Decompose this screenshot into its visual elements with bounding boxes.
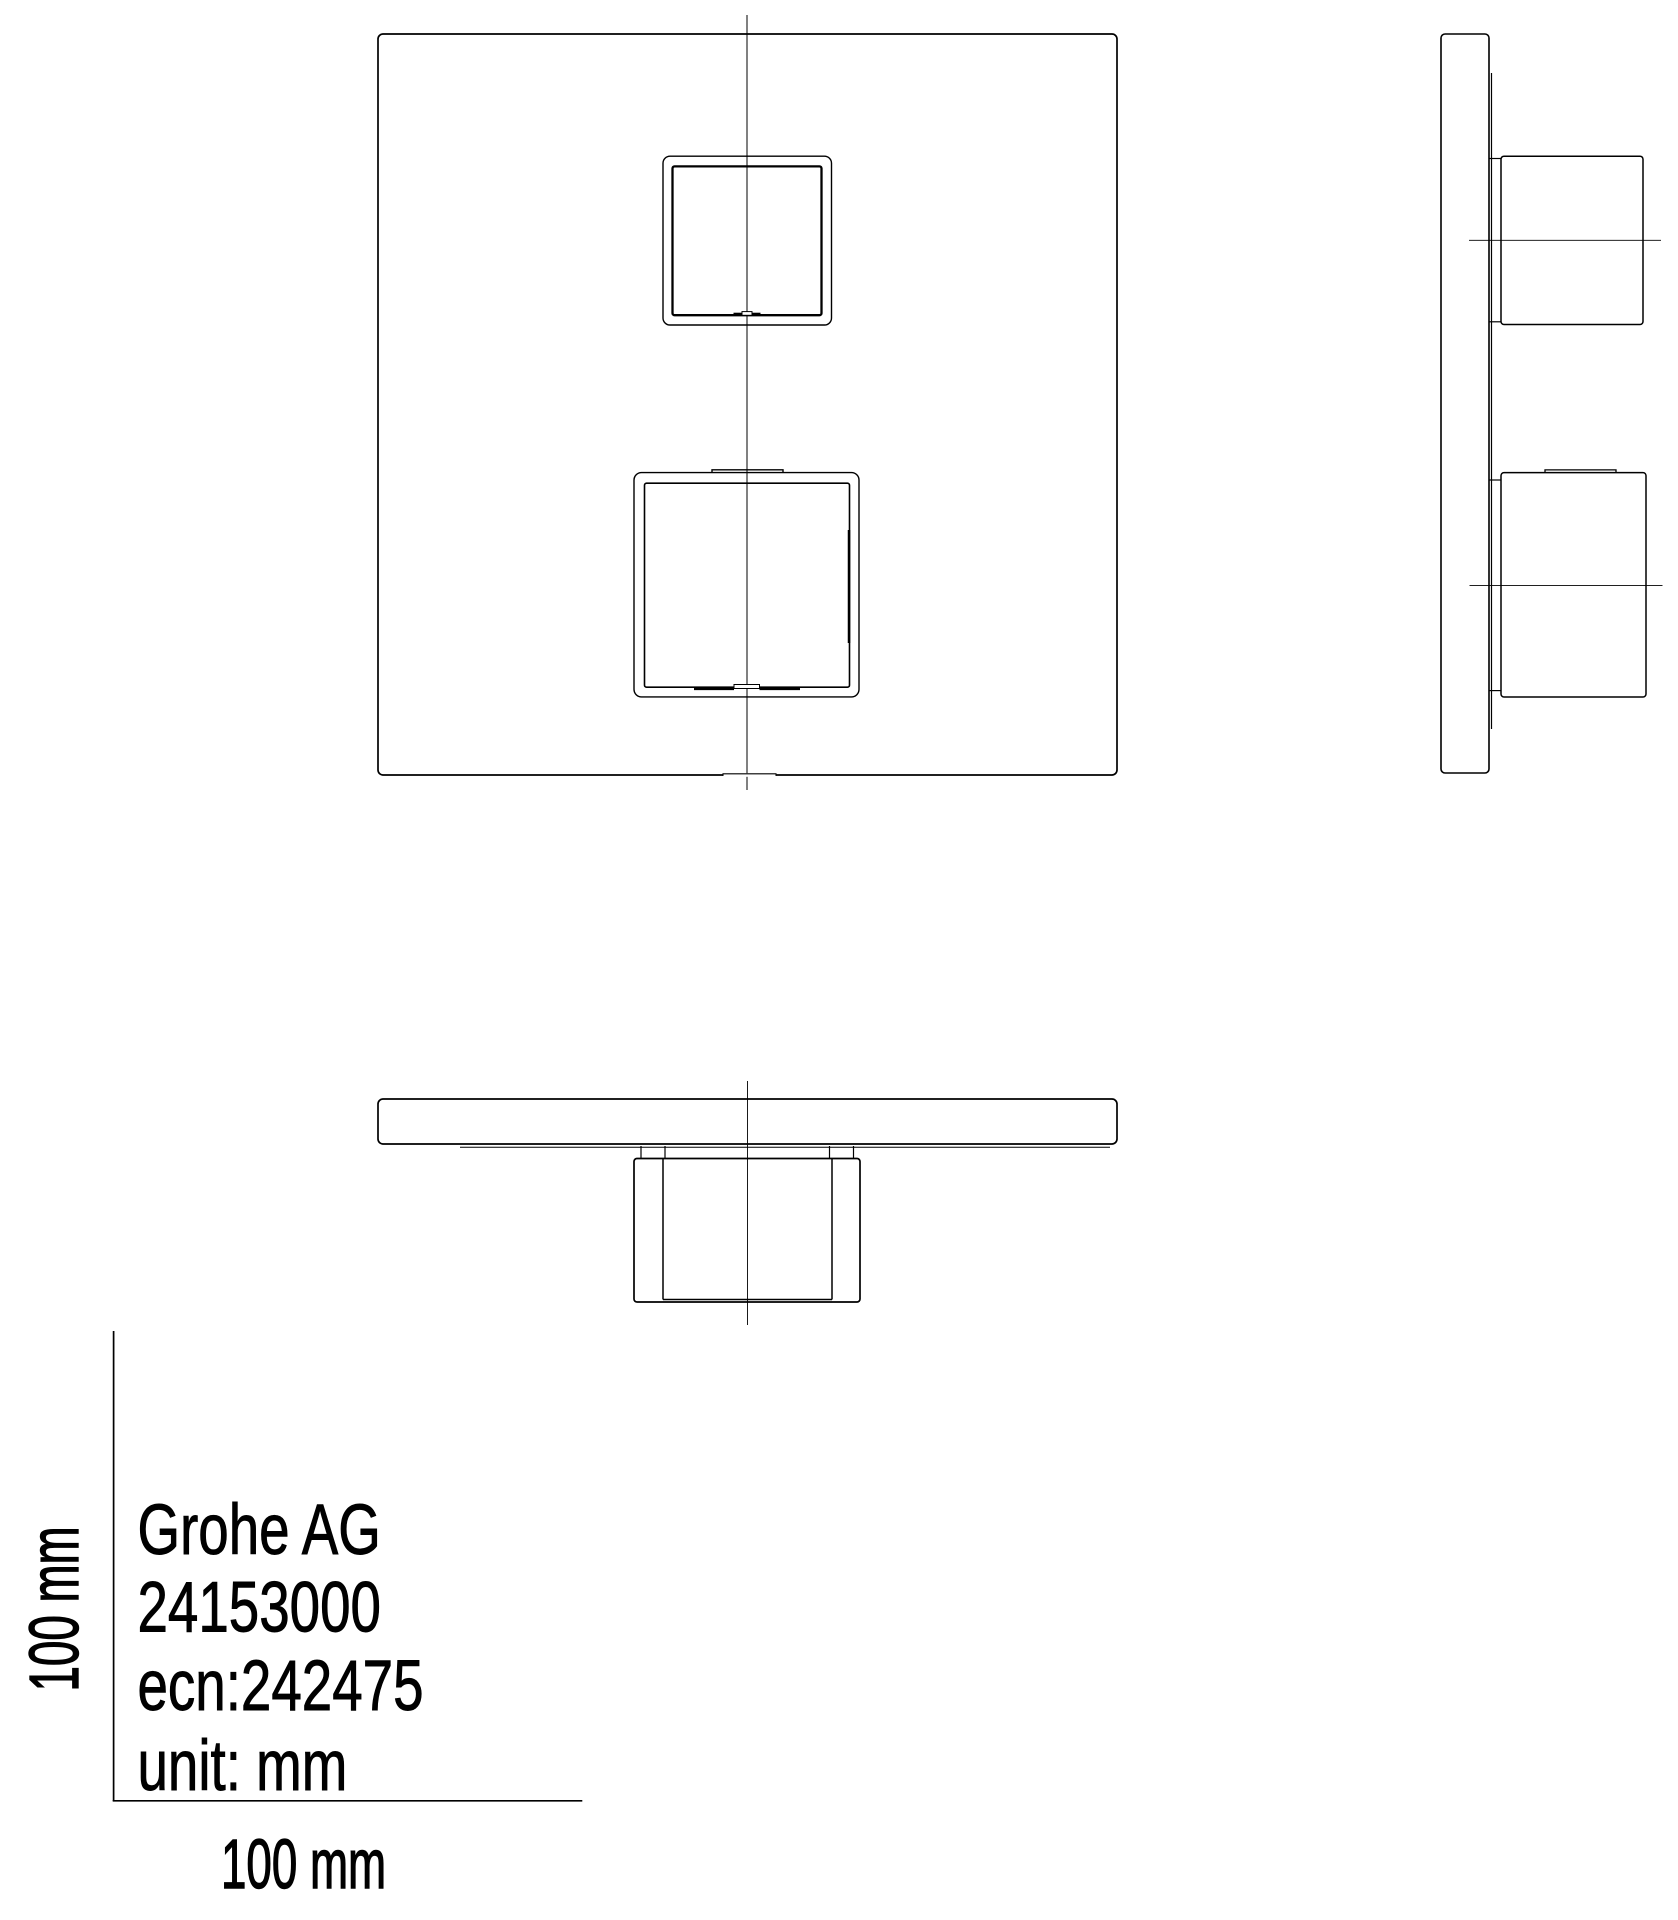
svg-text:Grohe AG: Grohe AG [138, 1491, 381, 1569]
svg-text:100 mm: 100 mm [221, 1824, 386, 1903]
svg-text:100 mm: 100 mm [14, 1526, 93, 1691]
svg-text:24153000: 24153000 [138, 1569, 381, 1647]
svg-text:ecn:242475: ecn:242475 [138, 1647, 424, 1725]
svg-text:unit: mm: unit: mm [138, 1727, 348, 1805]
